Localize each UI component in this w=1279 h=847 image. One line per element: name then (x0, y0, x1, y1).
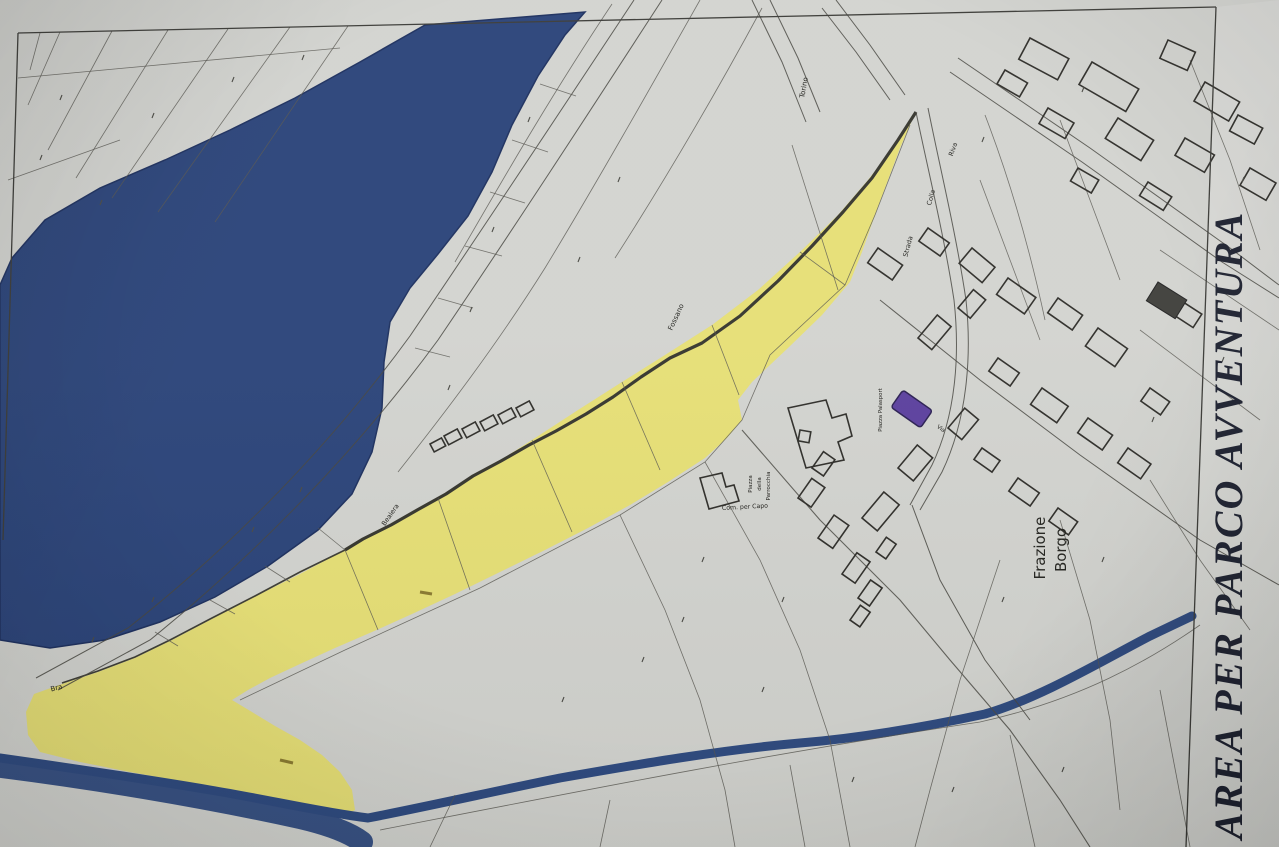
label-borgo: Borgo (1052, 528, 1070, 572)
map-photo: Frazione Borgo Piazza della Parrocchia P… (0, 0, 1279, 847)
handwritten-note: AREA PER PARCO AVVENTURA (1206, 211, 1251, 843)
label-piazza-parrocchia-2: della (757, 477, 763, 491)
label-piazza-parrocchia-3: Parrocchia (766, 471, 772, 500)
cadastral-map: Frazione Borgo Piazza della Parrocchia P… (0, 0, 1279, 847)
label-piazza-parrocchia-1: Piazza (748, 475, 754, 493)
label-frazione: Frazione (1031, 517, 1049, 580)
label-piazza-palasport: Piazza Palasport (878, 388, 884, 432)
